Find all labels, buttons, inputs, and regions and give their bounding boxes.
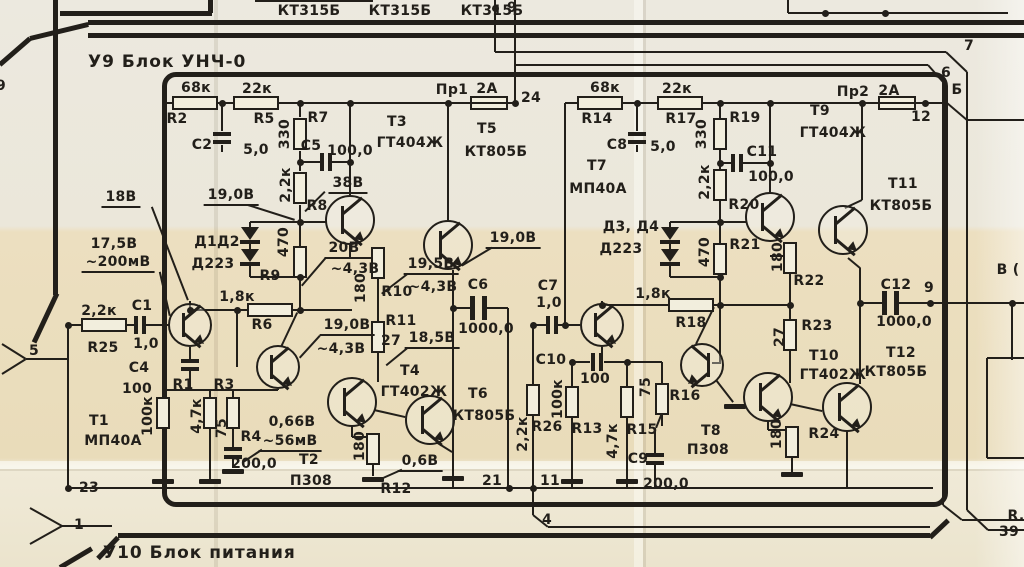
wire	[604, 361, 662, 363]
wire	[557, 324, 580, 326]
wire	[860, 302, 884, 304]
junction-dot	[767, 160, 774, 167]
label-330: 330	[695, 119, 709, 149]
label-Т8: Т8	[701, 424, 721, 438]
resistor-R17	[657, 96, 703, 110]
diode-D1D2	[240, 262, 260, 266]
resistor-R25	[81, 318, 127, 332]
label-R-: R.	[1008, 509, 1024, 523]
wire	[62, 525, 112, 527]
wire	[787, 0, 789, 13]
label-4-7к: 4,7к	[190, 398, 204, 434]
junction-dot	[65, 485, 72, 492]
transistor-T10	[743, 372, 793, 422]
diode-D3D4	[661, 249, 679, 262]
wire	[720, 221, 747, 223]
wire-diagonal	[30, 507, 63, 527]
junction-dot	[219, 100, 226, 107]
label-180: 180	[770, 419, 784, 449]
label-4-7к: 4,7к	[606, 423, 620, 459]
capacitor-C6	[482, 296, 487, 320]
label-КТ315Б: КТ315Б	[369, 4, 432, 18]
wire-diagonal	[532, 488, 534, 515]
wire	[145, 324, 169, 326]
label-Т12: Т12	[886, 346, 916, 360]
label-20В: 20В	[324, 241, 363, 259]
diode-D3D4	[661, 227, 679, 240]
label-ГТ404Ж: ГТ404Ж	[377, 136, 444, 150]
label-22к: 22к	[662, 82, 692, 96]
block-title-u10: У10 Блок питания	[103, 543, 296, 563]
label-R18: R18	[675, 316, 706, 330]
label-С6: С6	[468, 278, 489, 292]
label-Б: Б	[952, 83, 963, 97]
label-Т1: Т1	[89, 414, 109, 428]
junction-dot	[822, 10, 829, 17]
wire	[221, 145, 223, 152]
label-2А: 2А	[476, 82, 497, 96]
label-Пр1: Пр1	[436, 83, 468, 97]
capacitor-C9	[646, 461, 664, 465]
label-180: 180	[353, 431, 367, 461]
junction-dot	[717, 100, 724, 107]
wire	[67, 325, 69, 488]
label-1000-0: 1000,0	[458, 322, 514, 336]
label-R5: R5	[253, 112, 274, 126]
wire	[548, 526, 930, 528]
border-line	[928, 518, 949, 539]
label-24: 24	[521, 91, 541, 105]
label-R21: R21	[729, 238, 760, 252]
wire	[636, 145, 638, 152]
label-9: 9	[507, 1, 517, 15]
capacitor-C10	[591, 353, 595, 371]
label-ГТ402Ж: ГТ402Ж	[381, 385, 448, 399]
wire	[670, 221, 720, 223]
capacitor-C8	[628, 132, 646, 136]
capacitor-C2	[213, 132, 231, 136]
border-line	[59, 546, 94, 567]
capacitor-C12	[894, 291, 899, 315]
label-2-2к: 2,2к	[81, 304, 117, 318]
label-2-2к: 2,2к	[698, 164, 712, 200]
wire	[299, 205, 301, 246]
junction-dot	[922, 100, 929, 107]
label-68к: 68к	[181, 81, 211, 95]
label-П308: П308	[290, 474, 332, 488]
border-line	[118, 533, 930, 538]
junction-dot	[787, 302, 794, 309]
junction-dot	[297, 307, 304, 314]
junction-dot	[297, 274, 304, 281]
label-С4: С4	[129, 361, 150, 375]
label-1-0: 1,0	[536, 296, 562, 310]
wire	[250, 221, 300, 223]
capacitor-C5	[320, 153, 324, 171]
label-С10: С10	[536, 353, 567, 367]
label-5-0: 5,0	[243, 143, 269, 157]
label-Д3-Д4: Д3, Д4	[603, 220, 659, 234]
label-R13: R13	[571, 422, 602, 436]
wire	[861, 103, 863, 200]
junction-dot	[634, 100, 641, 107]
transistor-body	[818, 205, 868, 255]
resistor-R1	[156, 397, 170, 429]
wire	[742, 162, 770, 164]
label-В-: В (	[997, 263, 1020, 277]
capacitor-C200L	[224, 447, 242, 451]
resistor-R14	[577, 96, 623, 110]
label-R2: R2	[166, 112, 187, 126]
capacitor-C1	[142, 316, 146, 334]
junction-dot	[927, 300, 934, 307]
label-27: 27	[773, 327, 787, 347]
capacitor-C8	[628, 140, 646, 144]
wire	[515, 64, 928, 66]
label-ГТ404Ж: ГТ404Ж	[800, 126, 867, 140]
label-21: 21	[482, 474, 502, 488]
border-line	[29, 22, 88, 41]
wire	[789, 272, 791, 321]
label-75: 75	[215, 418, 229, 438]
label-17-5В: 17,5В	[91, 237, 138, 251]
wire	[896, 302, 1024, 304]
label-R20: R20	[728, 198, 759, 212]
junction-dot	[767, 100, 774, 107]
wire	[447, 103, 449, 220]
label-470: 470	[698, 237, 712, 267]
label-2А: 2А	[878, 84, 899, 98]
label-9: 9	[924, 281, 934, 295]
label-R3: R3	[213, 378, 234, 392]
label-Д223: Д223	[600, 242, 643, 256]
label-Т7: Т7	[587, 159, 607, 173]
transistor-T8	[680, 343, 724, 387]
label-4: 4	[542, 513, 552, 527]
resistor-R6	[247, 303, 293, 317]
ground-symbol	[781, 472, 803, 477]
wire	[661, 362, 663, 385]
label-Т4: Т4	[400, 364, 420, 378]
border-line	[88, 33, 1024, 38]
wire-diagonal	[946, 102, 967, 121]
wire	[249, 266, 251, 277]
junction-dot	[530, 322, 537, 329]
ground-symbol	[152, 479, 174, 484]
junction-dot	[445, 100, 452, 107]
wire	[564, 103, 566, 325]
label-19-0В: 19,0В	[320, 318, 375, 336]
label-Т10: Т10	[809, 349, 839, 363]
fuse-Pr1	[470, 96, 508, 110]
label-КТ805Б: КТ805Б	[870, 199, 933, 213]
junction-dot	[717, 160, 724, 167]
ground-symbol	[561, 479, 583, 484]
label-С12: С12	[881, 278, 912, 292]
label-180: 180	[771, 242, 785, 272]
wire	[484, 307, 508, 309]
label-0-66В: 0,66В	[269, 415, 316, 429]
label-П308: П308	[687, 443, 729, 457]
resistor-R20	[713, 169, 727, 201]
resistor-R19	[713, 118, 727, 150]
capacitor-C11	[739, 154, 743, 172]
wire	[255, 0, 373, 2]
transistor-body	[743, 372, 793, 422]
wire	[300, 221, 327, 223]
label-100: 100	[122, 382, 152, 396]
wire	[277, 389, 279, 390]
label-100к: 100к	[551, 379, 565, 419]
label-С7: С7	[538, 279, 559, 293]
label-18В: 18В	[101, 190, 140, 208]
transistor-T6	[405, 395, 455, 445]
wire	[986, 358, 988, 458]
label-Д1Д2: Д1Д2	[194, 235, 240, 249]
label-18-5В: 18,5В	[405, 331, 460, 349]
capacitor-C6	[470, 296, 475, 320]
resistor-R8	[293, 172, 307, 204]
label-R19: R19	[729, 111, 760, 125]
wire	[532, 325, 534, 385]
junction-dot	[187, 307, 194, 314]
label-23: 23	[79, 481, 99, 495]
diode-D3D4	[660, 262, 680, 266]
label-27: 27	[381, 334, 401, 348]
label-R10: R10	[381, 285, 412, 299]
label-1-8к: 1,8к	[635, 287, 671, 301]
junction-dot	[569, 359, 576, 366]
label-КТ315Б: КТ315Б	[278, 4, 341, 18]
label-6: 6	[941, 66, 951, 80]
diode-D1D2	[241, 227, 259, 240]
capacitor-C7	[554, 316, 558, 334]
junction-dot	[347, 100, 354, 107]
label-R17: R17	[665, 112, 696, 126]
wire	[495, 51, 946, 53]
label-Т5: Т5	[477, 122, 497, 136]
border-line	[60, 11, 212, 16]
resistor-R13	[565, 386, 579, 418]
resistor-R12	[366, 433, 380, 465]
label-39: 39	[999, 525, 1019, 539]
wire-diagonal	[30, 525, 63, 545]
border-line	[208, 0, 213, 13]
junction-dot	[882, 10, 889, 17]
label-R15: R15	[626, 423, 657, 437]
label-7: 7	[964, 39, 974, 53]
wire	[967, 119, 1024, 121]
label-R16: R16	[669, 389, 700, 403]
border-line	[0, 36, 32, 66]
label-5: 5	[29, 344, 39, 358]
label-Д223: Д223	[192, 257, 235, 271]
label-11: 11	[540, 474, 560, 488]
label-R9: R9	[259, 269, 280, 283]
label-R22: R22	[793, 274, 824, 288]
wire	[846, 431, 848, 488]
wire	[452, 270, 454, 488]
label-2-2к: 2,2к	[279, 167, 293, 203]
junction-dot	[717, 302, 724, 309]
label-0-6В: 0,6В	[398, 454, 443, 472]
label-100-0: 100,0	[327, 144, 373, 158]
label-С5: С5	[301, 139, 322, 153]
label-С8: С8	[607, 138, 628, 152]
label-22к: 22к	[242, 82, 272, 96]
junction-dot	[297, 219, 304, 226]
junction-dot	[65, 322, 72, 329]
transistor-T7	[580, 303, 624, 347]
diode-D1D2	[241, 249, 259, 262]
diode-D1D2	[240, 240, 260, 244]
capacitor-C1	[134, 316, 138, 334]
label--4-3В: ~4,3В	[317, 342, 366, 356]
capacitor-C4	[181, 359, 199, 363]
label-1000-0: 1000,0	[876, 315, 932, 329]
wire	[626, 362, 628, 387]
label-R23: R23	[801, 319, 832, 333]
label-Т9: Т9	[810, 104, 830, 118]
capacitor-C11	[731, 154, 735, 172]
label-R1: R1	[172, 378, 193, 392]
junction-dot	[347, 159, 354, 166]
transistor-T12	[822, 382, 872, 432]
label-КТ805Б: КТ805Б	[453, 409, 516, 423]
wire	[377, 353, 379, 382]
wire	[209, 390, 211, 397]
label--4-3В: ~4,3В	[409, 280, 458, 294]
label-Т11: Т11	[888, 177, 918, 191]
label-С11: С11	[747, 145, 778, 159]
wire	[221, 103, 223, 131]
capacitor-C2	[213, 140, 231, 144]
junction-dot	[297, 159, 304, 166]
label-9: 9	[0, 79, 6, 93]
resistor-R24	[785, 426, 799, 458]
label-R24: R24	[808, 427, 839, 441]
label-R8: R8	[306, 199, 327, 213]
label-R26: R26	[531, 420, 562, 434]
label-МП40А: МП40А	[569, 182, 626, 196]
wire-diagonal	[1, 343, 26, 360]
wire	[670, 276, 720, 278]
label-100: 100	[580, 372, 610, 386]
transistor-T2	[256, 345, 300, 389]
border-line	[88, 20, 1024, 25]
label-КТ805Б: КТ805Б	[465, 145, 528, 159]
label-19-0В: 19,0В	[486, 231, 541, 249]
label-R14: R14	[581, 112, 612, 126]
label-200-0: 200,0	[231, 457, 277, 471]
junction-dot	[857, 300, 864, 307]
resistor-R21	[713, 243, 727, 275]
label-19-0В: 19,0В	[204, 188, 259, 206]
ground-symbol	[442, 476, 464, 481]
resistor-R18	[668, 298, 714, 312]
resistor-R15	[620, 386, 634, 418]
label-С9: С9	[628, 452, 649, 466]
label-R7: R7	[307, 111, 328, 125]
junction-dot	[562, 322, 569, 329]
junction-dot	[624, 359, 631, 366]
label-Т6: Т6	[468, 387, 488, 401]
wire	[236, 310, 238, 367]
resistor-R26	[526, 384, 540, 416]
schematic-scan: У9 Блок УНЧ-0 У10 Блок питания КТ315БКТ3…	[0, 0, 1024, 567]
label--200мВ: ~200мВ	[82, 255, 155, 273]
junction-dot	[234, 307, 241, 314]
resistor-R2	[172, 96, 218, 110]
label-19-5В: 19,5В	[404, 257, 459, 275]
wire	[636, 103, 638, 131]
transistor-body	[405, 395, 455, 445]
label-R6: R6	[251, 318, 272, 332]
label-С1: С1	[132, 299, 153, 313]
wire	[377, 277, 379, 321]
wire	[571, 362, 573, 387]
label-КТ805Б: КТ805Б	[865, 365, 928, 379]
junction-dot	[506, 485, 513, 492]
label-470: 470	[277, 227, 291, 257]
wire	[791, 457, 793, 472]
transistor-T3	[325, 195, 375, 245]
junction-dot	[512, 100, 519, 107]
diode-D3D4	[660, 240, 680, 244]
label-МП40А: МП40А	[84, 434, 141, 448]
junction-dot	[297, 100, 304, 107]
transistor-T4	[327, 377, 377, 427]
label-100к: 100к	[141, 396, 155, 436]
transistor-body	[327, 377, 377, 427]
label-330: 330	[278, 119, 292, 149]
wire	[987, 357, 1024, 359]
label--56мВ: ~56мВ	[259, 434, 322, 452]
wire	[162, 390, 164, 397]
transistor-T11	[818, 205, 868, 255]
wire-diagonal	[1, 358, 26, 375]
label-R12: R12	[380, 482, 411, 496]
resistor-R16	[655, 383, 669, 415]
junction-dot	[717, 219, 724, 226]
label-Т3: Т3	[387, 115, 407, 129]
junction-dot	[530, 485, 537, 492]
label-Пр2: Пр2	[837, 85, 869, 99]
junction-dot	[1009, 300, 1016, 307]
capacitor-C12	[882, 291, 887, 315]
block-title-u9: У9 Блок УНЧ-0	[88, 52, 246, 72]
label-Т2: Т2	[299, 453, 319, 467]
label-R25: R25	[87, 341, 118, 355]
wire	[209, 429, 211, 479]
label-180: 180	[354, 273, 368, 303]
capacitor-C4	[181, 367, 199, 371]
capacitor-C7	[546, 316, 550, 334]
label-С2: С2	[192, 138, 213, 152]
wire-diagonal	[966, 72, 968, 510]
paper-edge	[975, 0, 1024, 567]
label-ГТ402Ж: ГТ402Ж	[800, 368, 867, 382]
wire	[299, 278, 301, 310]
resistor-R5	[233, 96, 279, 110]
label-1-8к: 1,8к	[219, 290, 255, 304]
wire	[1011, 303, 1013, 360]
junction-dot	[599, 302, 606, 309]
label-1: 1	[74, 518, 84, 532]
label-5-0: 5,0	[650, 140, 676, 154]
wire-diagonal	[942, 82, 944, 505]
transistor-body	[822, 382, 872, 432]
